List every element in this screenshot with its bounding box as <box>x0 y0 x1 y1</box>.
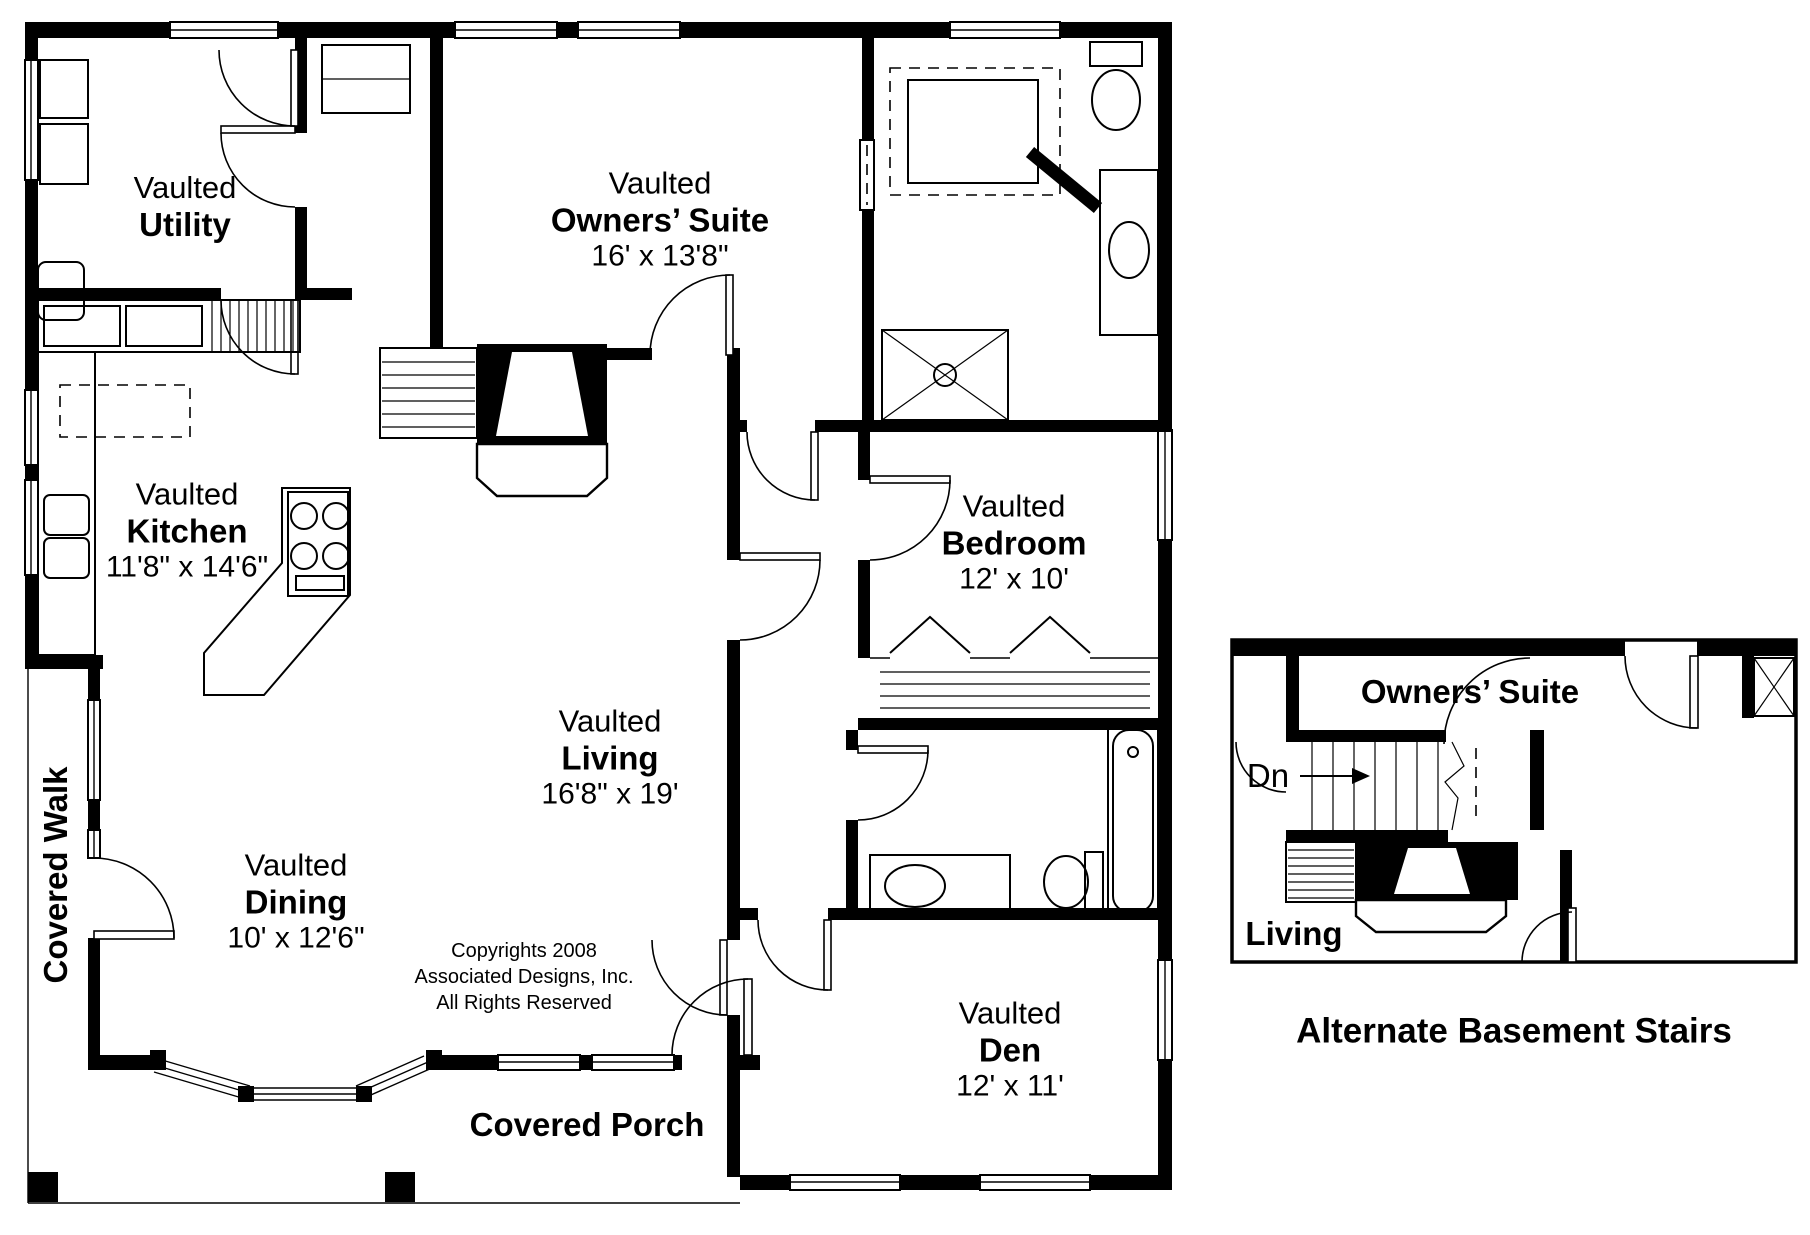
bifold-door <box>890 617 970 653</box>
fireplace <box>380 344 607 496</box>
room-name: Dining <box>227 883 364 921</box>
room-label-owners-suite: Vaulted Owners’ Suite 16' x 13'8" <box>551 165 769 274</box>
room-type: Vaulted <box>551 165 769 201</box>
sink <box>1109 222 1149 278</box>
room-name: Kitchen <box>106 512 268 550</box>
inset-owners-suite-label: Owners’ Suite <box>1361 673 1579 711</box>
toilet <box>1044 856 1088 908</box>
room-label-kitchen: Vaulted Kitchen 11'8" x 14'6" <box>106 476 268 585</box>
room-dimensions: 16' x 13'8" <box>551 240 769 275</box>
porch-post <box>385 1172 415 1202</box>
vanity <box>870 855 1010 917</box>
room-dimensions: 16'8" x 19' <box>541 778 678 813</box>
dryer <box>40 124 88 184</box>
room-type: Vaulted <box>956 995 1064 1031</box>
covered-porch-label: Covered Porch <box>470 1106 705 1144</box>
room-dimensions: 11'8" x 14'6" <box>106 551 268 586</box>
covered-walk-label: Covered Walk <box>37 766 75 983</box>
room-label-dining: Vaulted Dining 10' x 12'6" <box>227 847 364 956</box>
walk-in-closet <box>890 68 1060 195</box>
room-type: Vaulted <box>541 703 678 739</box>
room-label-utility: Vaulted Utility <box>134 170 237 244</box>
kitchen-sink <box>44 495 89 535</box>
room-name: Bedroom <box>942 524 1087 562</box>
owners-bath-fixtures <box>882 42 1158 420</box>
toilet <box>1092 70 1140 130</box>
room-type: Vaulted <box>106 476 268 512</box>
room-type: Vaulted <box>227 847 364 883</box>
inset-caption: Alternate Basement Stairs <box>1296 1012 1732 1053</box>
room-name: Owners’ Suite <box>551 201 769 239</box>
inset-down-label: Dn <box>1247 757 1289 795</box>
room-label-living: Vaulted Living 16'8" x 19' <box>541 703 678 812</box>
porch-post <box>28 1172 58 1202</box>
room-dimensions: 12' x 11' <box>956 1070 1064 1105</box>
sink <box>885 865 945 907</box>
room-name: Den <box>956 1031 1064 1069</box>
kitchen-sink <box>44 538 89 578</box>
angled-wall <box>1030 152 1098 208</box>
room-type: Vaulted <box>942 488 1087 524</box>
room-dimensions: 12' x 10' <box>942 563 1087 598</box>
room-name: Living <box>541 739 678 777</box>
room-dimensions: 10' x 12'6" <box>227 922 364 957</box>
toilet-tank <box>1090 42 1142 66</box>
bathtub <box>1108 725 1158 917</box>
refrigerator-space <box>60 385 190 437</box>
room-name: Utility <box>134 206 237 244</box>
inset-living-label: Living <box>1245 915 1342 953</box>
stairs <box>1286 730 1446 742</box>
room-label-den: Vaulted Den 12' x 11' <box>956 995 1064 1104</box>
floor-plan-page: Vaulted Utility Vaulted Owners’ Suite 16… <box>0 0 1810 1235</box>
kitchen-counter <box>38 352 95 655</box>
washer <box>40 60 88 118</box>
copyright-notice: Copyrights 2008 Associated Designs, Inc.… <box>415 938 634 1016</box>
break-line <box>1445 742 1464 830</box>
room-label-bedroom: Vaulted Bedroom 12' x 10' <box>942 488 1087 597</box>
room-type: Vaulted <box>134 170 237 206</box>
bifold-door <box>1010 617 1090 653</box>
